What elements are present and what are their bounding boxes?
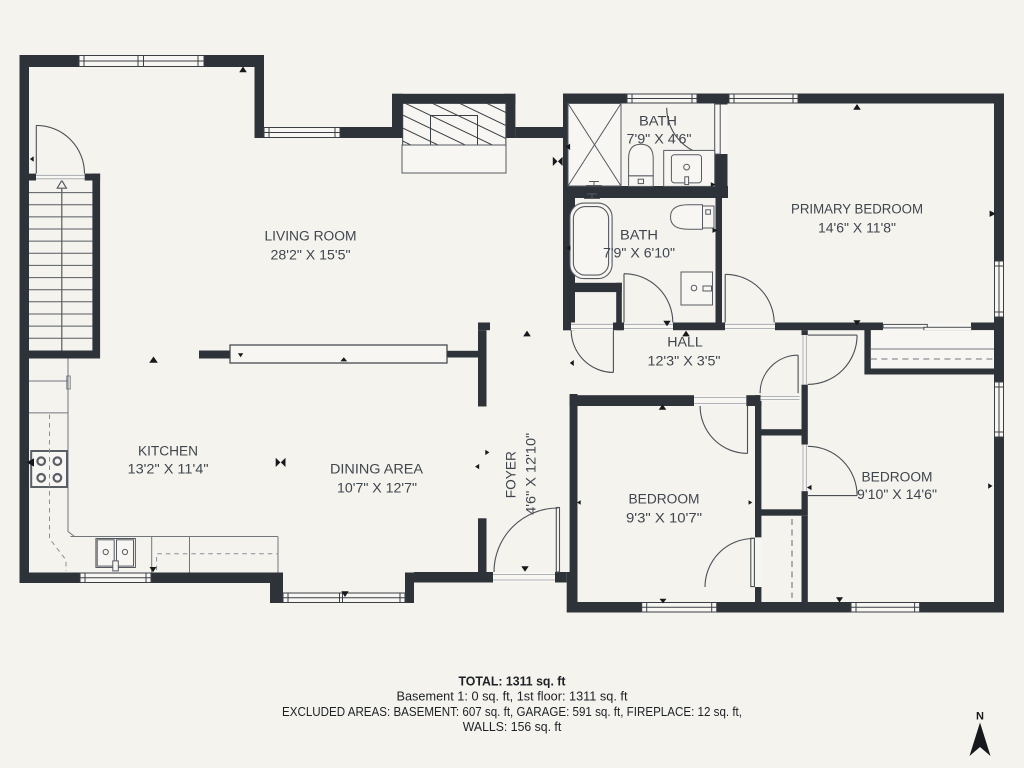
svg-text:PRIMARY BEDROOM: PRIMARY BEDROOM [791,202,923,218]
svg-text:BATH: BATH [639,114,677,130]
svg-text:7'9" X 4'6": 7'9" X 4'6" [627,132,692,148]
svg-text:HALL: HALL [667,335,703,351]
svg-text:7'9" X 6'10": 7'9" X 6'10" [603,246,675,262]
svg-text:DINING AREA: DINING AREA [330,462,424,478]
svg-text:28'2" X 15'5": 28'2" X 15'5" [271,248,351,264]
svg-text:BEDROOM: BEDROOM [862,470,933,486]
svg-text:13'2" X 11'4": 13'2" X 11'4" [128,462,209,478]
svg-text:WALLS: 156 sq. ft: WALLS: 156 sq. ft [463,719,562,734]
svg-text:FOYER: FOYER [504,451,520,498]
svg-text:LIVING ROOM: LIVING ROOM [265,229,357,245]
svg-text:BEDROOM: BEDROOM [629,492,700,508]
svg-text:TOTAL: 1311 sq. ft: TOTAL: 1311 sq. ft [459,674,567,689]
svg-text:Basement 1: 0 sq. ft, 1st floo: Basement 1: 0 sq. ft, 1st floor: 1311 sq… [397,689,628,704]
svg-text:12'3" X 3'5": 12'3" X 3'5" [648,354,721,370]
svg-text:EXCLUDED AREAS: BASEMENT: 607: EXCLUDED AREAS: BASEMENT: 607 sq. ft, GA… [282,704,742,719]
svg-text:9'10" X 14'6": 9'10" X 14'6" [857,487,937,503]
svg-text:4'6" X 12'10": 4'6" X 12'10" [524,433,540,515]
svg-text:KITCHEN: KITCHEN [138,444,198,460]
svg-text:BATH: BATH [620,228,658,244]
svg-text:14'6" X 11'8": 14'6" X 11'8" [818,221,896,237]
svg-text:9'3" X 10'7": 9'3" X 10'7" [626,511,702,527]
svg-text:10'7" X 12'7": 10'7" X 12'7" [337,481,417,497]
svg-text:N: N [976,711,984,723]
